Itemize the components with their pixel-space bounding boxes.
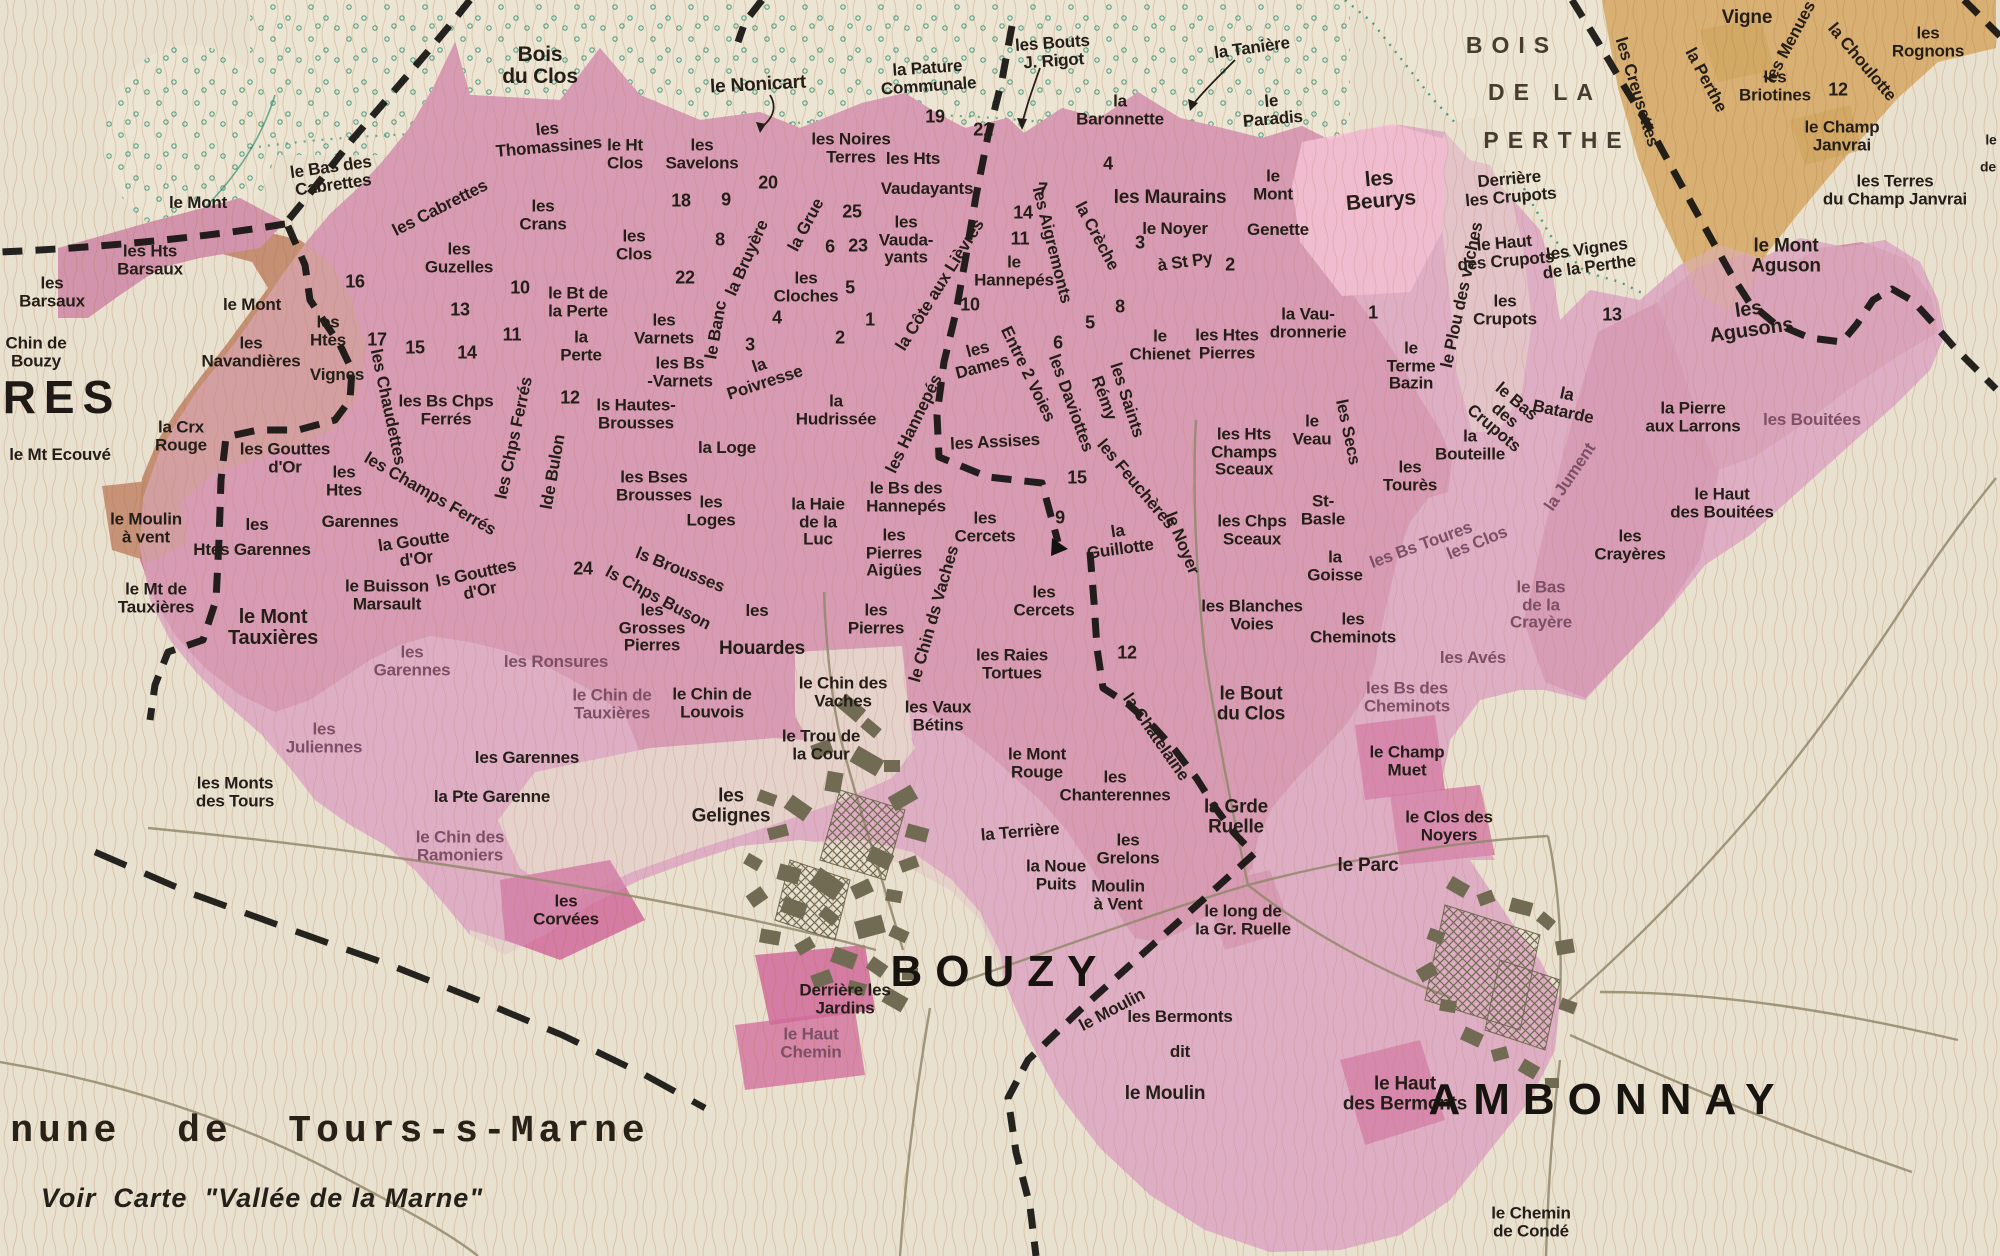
parcel-number: 17 — [367, 331, 387, 350]
parcel-label: le Bas des Crupots — [1464, 374, 1547, 456]
town-label: BOUZY — [891, 949, 1110, 995]
parcel-label: les Noires Terres — [811, 130, 890, 165]
parcel-label: le Mont Aguson — [1751, 236, 1821, 276]
parcel-label: les Agusons — [1705, 294, 1794, 347]
parcel-label: les Daviottes — [1045, 352, 1097, 454]
parcel-number: 24 — [573, 560, 593, 579]
parcel-number: 4 — [1103, 155, 1113, 174]
parcel-label: les Garennes — [374, 643, 451, 678]
parcel-number: 2 — [1225, 256, 1235, 275]
parcel-label: Chin de Bouzy — [6, 334, 67, 369]
parcel-number: 5 — [845, 279, 855, 298]
parcel-label: les Creusettes — [1612, 35, 1662, 149]
parcel-number: 14 — [457, 344, 477, 363]
parcel-label: les Hannepés — [883, 372, 946, 476]
parcel-label: le Bas de la Crayère — [1510, 578, 1572, 631]
parcel-label: les Gouttes d'Or — [240, 440, 330, 475]
parcel-number: 15 — [405, 339, 425, 358]
parcel-label: les Pierres Aigües — [866, 526, 922, 579]
parcel-label: les — [745, 602, 768, 620]
parcel-label: les Aigremonts — [1029, 185, 1075, 305]
parcel-label: le Moulin à vent — [110, 510, 182, 545]
parcel-label: les Bouts J. Rigot — [1014, 32, 1091, 72]
parcel-label: les Bs des Cheminots — [1364, 679, 1450, 714]
parcel-label: le Clos des Noyers — [1405, 808, 1493, 843]
parcel-label: Vignes — [310, 366, 364, 384]
parcel-label: le Banc — [702, 299, 730, 360]
parcel-label: Htes Garennes — [193, 541, 310, 559]
parcel-label: les Briotines — [1739, 68, 1811, 103]
parcel-label: à St Py — [1156, 249, 1213, 274]
parcel-number: 6 — [825, 238, 835, 257]
parcel-label: BOIS — [1466, 34, 1558, 58]
parcel-label: les Secs — [1332, 398, 1363, 467]
parcel-label: le Haut des Crupots — [1455, 230, 1555, 274]
parcel-label: les Bs -Varnets — [647, 354, 713, 389]
parcel-label: la Guillotte — [1083, 518, 1154, 562]
parcel-number: 20 — [758, 174, 778, 193]
parcel-label: la Goutte d'Or — [377, 527, 453, 572]
parcel-label: les Bses Brousses — [616, 468, 692, 503]
parcel-label: la Bouteille — [1435, 427, 1505, 462]
parcel-label: le Haut des Bouitées — [1670, 485, 1773, 520]
parcel-label: le Chemin de Condé — [1491, 1204, 1570, 1239]
parcel-label: Voir Carte "Vallée de la Marne" — [41, 1184, 483, 1212]
parcel-label: Vigne — [1722, 8, 1772, 28]
parcel-label: le Veau — [1293, 412, 1332, 447]
parcel-label: dit — [1170, 1043, 1190, 1061]
parcel-label: Garennes — [322, 513, 399, 531]
parcel-label: Moulin à Vent — [1091, 877, 1145, 912]
parcel-label: les Clos — [616, 227, 652, 262]
parcel-number: 12 — [1828, 81, 1848, 100]
parcel-label: le Chin des Vaches — [799, 674, 888, 709]
parcel-label: les Grosses Pierres — [619, 601, 686, 654]
parcel-label: les Feuchères — [1094, 436, 1179, 532]
parcel-number: 13 — [450, 301, 470, 320]
parcel-label: Derrière les Jardins — [799, 981, 890, 1016]
parcel-number: 8 — [715, 231, 725, 250]
parcel-label: les Beurys — [1343, 165, 1417, 215]
parcel-label: les Menues — [1761, 0, 1819, 86]
parcel-number: 11 — [503, 326, 522, 345]
parcel-label: les Chps Sceaux — [1217, 512, 1286, 547]
parcel-label: les Tourès — [1383, 458, 1437, 493]
parcel-label: ls Gouttes d'Or — [435, 556, 522, 607]
parcel-label: le Terme Bazin — [1387, 339, 1436, 392]
parcel-label: les Htes — [326, 463, 362, 498]
parcel-number: 16 — [345, 273, 365, 292]
parcel-label: les Hts Champs Sceaux — [1211, 425, 1277, 478]
parcel-label: les Dames — [949, 334, 1011, 382]
parcel-label: le Mont — [223, 296, 281, 314]
parcel-label: le Mont — [1253, 167, 1293, 202]
parcel-label: le Chin de Louvois — [672, 685, 751, 720]
parcel-number: 21 — [973, 121, 993, 140]
parcel-label: DE LA — [1488, 81, 1602, 105]
parcel-label: la Bruyère — [722, 217, 771, 298]
parcel-label: le Mont Rouge — [1008, 745, 1066, 780]
parcel-label: les Vauda- yants — [879, 213, 934, 266]
parcel-number: 5 — [1085, 314, 1095, 333]
parcel-label: les Maurains — [1114, 188, 1227, 208]
parcel-label: Vaudayants — [881, 180, 974, 198]
parcel-number: 25 — [842, 203, 862, 222]
parcel-label: les Hts — [886, 150, 940, 168]
parcel-number: 19 — [925, 108, 945, 127]
parcel-label: les Cabrettes — [390, 176, 491, 239]
parcel-label: les Navandières — [202, 334, 301, 369]
parcel-label: le Chienet — [1130, 327, 1191, 362]
parcel-number: 4 — [772, 309, 782, 328]
parcel-label: le Champ Muet — [1370, 743, 1445, 778]
parcel-label: la Jument — [1541, 440, 1599, 514]
parcel-label: le Mt de Tauxières — [118, 580, 194, 615]
parcel-label: la Crèche — [1072, 199, 1123, 273]
parcel-label: le Bout du Clos — [1217, 684, 1285, 724]
parcel-label: la Crx Rouge — [155, 418, 207, 453]
parcel-number: 8 — [1115, 298, 1125, 317]
parcel-number: 23 — [848, 237, 868, 256]
parcel-label: les Chps Ferrés — [492, 375, 535, 501]
vineyard-map: Bois du Closle Nonicartles Thomassinesle… — [0, 0, 2000, 1256]
parcel-label: les Guzelles — [425, 240, 493, 275]
parcel-label: les Thomassines — [493, 116, 602, 160]
parcel-number: 6 — [1053, 334, 1063, 353]
parcel-label: la Terrière — [980, 820, 1060, 844]
parcel-number: 7 — [1038, 181, 1048, 200]
parcel-label: les Hts Barsaux — [117, 242, 183, 277]
parcel-label: Entre 2 Voies — [997, 323, 1058, 424]
town-label: AMBONNAY — [1428, 1077, 1787, 1123]
parcel-label: les Rognons — [1892, 24, 1964, 59]
parcel-label: Rémy — [1088, 374, 1120, 423]
parcel-label: le Moulin — [1125, 1084, 1206, 1104]
parcel-label: RES — [3, 374, 122, 422]
parcel-number: 3 — [745, 336, 755, 355]
parcel-label: la Poivresse — [719, 345, 805, 403]
parcel-label: la Baronnette — [1076, 92, 1164, 127]
parcel-label: les Terres du Champ Janvrai — [1823, 172, 1967, 207]
parcel-label: les Grelons — [1097, 831, 1160, 866]
parcel-label: le Bt de la Perte — [548, 284, 608, 319]
parcel-label: nune de Tours-s-Marne — [10, 1112, 650, 1152]
parcel-number: 2 — [835, 329, 845, 348]
parcel-label: la Perthe — [1682, 45, 1730, 115]
parcel-label: le Chin des Ramoniers — [416, 828, 505, 863]
parcel-label: la Loge — [698, 439, 756, 457]
parcel-label: les Saints — [1107, 360, 1148, 439]
parcel-label: Genette — [1247, 221, 1309, 239]
parcel-label: les Cercets — [955, 509, 1016, 544]
parcel-label: le Haut Chemin — [780, 1025, 841, 1060]
parcel-label: Houardes — [719, 639, 805, 659]
parcel-label: les Cercets — [1014, 583, 1075, 618]
parcel-label: la Vau- dronnerie — [1270, 305, 1347, 340]
parcel-label: les Raies Tortues — [976, 646, 1048, 681]
parcel-label: les Corvées — [533, 892, 599, 927]
parcel-label: les Blanches Voies — [1201, 597, 1303, 632]
parcel-label: le Plou des vaches — [1438, 221, 1486, 370]
parcel-label: la Châtelaine — [1119, 690, 1192, 784]
parcel-label: les Juliennes — [286, 720, 363, 755]
parcel-label: le Ht Clos — [607, 136, 643, 171]
parcel-number: 13 — [1602, 306, 1622, 325]
parcel-label: le Haut des Bermonts — [1343, 1074, 1467, 1114]
parcel-label: le Hannepés — [974, 253, 1054, 288]
parcel-label: les Crayères — [1594, 527, 1665, 562]
parcel-label: les Garennes — [475, 749, 579, 767]
parcel-label: le Mt Ecouvé — [9, 446, 111, 464]
parcel-label: la Choulotte — [1824, 20, 1899, 105]
parcel-label: la Pature Communale — [879, 56, 977, 98]
parcel-label: les Crupots — [1473, 292, 1537, 327]
parcel-label: les — [245, 516, 268, 534]
parcel-label: le Mont Tauxières — [228, 607, 318, 649]
parcel-label: la Côte aux Lièvres — [892, 216, 987, 354]
parcel-label: la Hudrissée — [796, 392, 876, 427]
parcel-label: les Pierres — [848, 601, 904, 636]
parcel-label: le — [1985, 133, 1996, 148]
parcel-label: les Avés — [1440, 649, 1506, 667]
parcel-label: le Noyer — [1142, 220, 1208, 238]
parcel-label: le Mont — [169, 194, 227, 212]
parcel-label: ls Hautes- Brousses — [596, 396, 675, 431]
parcel-label: le Buisson Marsault — [345, 577, 429, 612]
parcel-label: lde Bulon — [538, 433, 569, 511]
parcel-label: le Noyer — [1162, 509, 1203, 576]
parcel-label: le Bs des Hannepés — [866, 479, 946, 514]
parcel-label: la Batarde — [1531, 379, 1599, 426]
parcel-label: les Chanterennes — [1060, 768, 1171, 803]
parcel-label: la Tanière — [1213, 34, 1291, 62]
parcel-label: la Noue Puits — [1026, 857, 1086, 892]
parcel-label: de — [1980, 160, 1996, 175]
parcel-label: les Chaudettes — [367, 347, 409, 466]
parcel-label: la Perte — [560, 328, 602, 363]
parcel-label: les Gelignes — [692, 786, 771, 826]
map-labels: Bois du Closle Nonicartles Thomassinesle… — [0, 0, 2000, 1256]
parcel-label: PERTHE — [1483, 129, 1630, 153]
parcel-label: Bois du Clos — [502, 44, 578, 88]
parcel-label: le Chin de Tauxières — [572, 686, 651, 721]
parcel-label: les Htes — [310, 313, 346, 348]
parcel-label: le Paradis — [1241, 90, 1304, 130]
parcel-label: ls Brousses — [633, 544, 727, 596]
parcel-number: 9 — [721, 191, 731, 210]
parcel-number: 1 — [865, 311, 875, 330]
parcel-number: 12 — [1117, 644, 1137, 663]
parcel-label: les Varnets — [634, 311, 694, 346]
parcel-label: la Pte Garenne — [434, 788, 550, 806]
parcel-label: les Bs Chps Ferrés — [398, 392, 493, 427]
parcel-label: les Barsaux — [19, 274, 85, 309]
parcel-label: les Vignes de la Perthe — [1539, 234, 1637, 282]
parcel-label: le Chin ds Vaches — [906, 544, 962, 685]
parcel-label: la Grde Ruelle — [1204, 797, 1268, 837]
parcel-label: les Vaux Bétins — [905, 698, 971, 733]
parcel-label: les Crans — [519, 197, 566, 232]
parcel-label: le Bas des Cabrettes — [289, 153, 375, 199]
parcel-label: la Pierre aux Larrons — [1645, 399, 1740, 434]
parcel-label: les Cheminots — [1310, 610, 1396, 645]
parcel-label: les Bouitées — [1763, 411, 1861, 429]
parcel-label: le long de la Gr. Ruelle — [1195, 902, 1291, 937]
parcel-number: 1 — [1368, 304, 1378, 323]
parcel-number: 11 — [1011, 230, 1030, 249]
parcel-number: 3 — [1135, 234, 1145, 253]
parcel-number: 18 — [671, 192, 691, 211]
parcel-number: 9 — [1055, 509, 1065, 528]
parcel-label: les Assises — [950, 431, 1041, 453]
parcel-label: le Trou de la Cour — [782, 727, 860, 762]
parcel-label: les Ronsures — [504, 653, 608, 671]
parcel-label: les Loges — [686, 493, 735, 528]
parcel-label: les Cloches — [774, 269, 839, 304]
parcel-label: les Bs Toures — [1367, 518, 1474, 571]
parcel-label: les Monts des Tours — [196, 774, 274, 809]
parcel-label: la Grue — [785, 196, 827, 255]
parcel-label: les Savelons — [665, 136, 738, 171]
parcel-label: St- Basle — [1301, 492, 1345, 527]
parcel-label: le Parc — [1338, 856, 1399, 876]
parcel-label: la Goisse — [1307, 548, 1363, 583]
parcel-label: le Nonicart — [710, 73, 807, 98]
parcel-label: le Moulin — [1076, 985, 1148, 1034]
parcel-label: Derrière les Crupots — [1463, 166, 1557, 209]
parcel-number: 22 — [675, 269, 695, 288]
parcel-label: le Champ Janvrai — [1805, 118, 1880, 153]
parcel-number: 15 — [1067, 469, 1087, 488]
parcel-label: les Champs Ferrés — [361, 449, 499, 539]
parcel-number: 10 — [960, 296, 980, 315]
parcel-number: 10 — [510, 279, 530, 298]
parcel-label: la Haie de la Luc — [791, 495, 844, 548]
parcel-label: les Htes Pierres — [1195, 326, 1259, 361]
parcel-label: ls Chps Buson — [602, 563, 713, 633]
parcel-label: les Bermonts — [1127, 1008, 1232, 1026]
parcel-number: 12 — [560, 389, 580, 408]
parcel-number: 14 — [1013, 204, 1033, 223]
parcel-label: les Clos — [1444, 523, 1510, 563]
